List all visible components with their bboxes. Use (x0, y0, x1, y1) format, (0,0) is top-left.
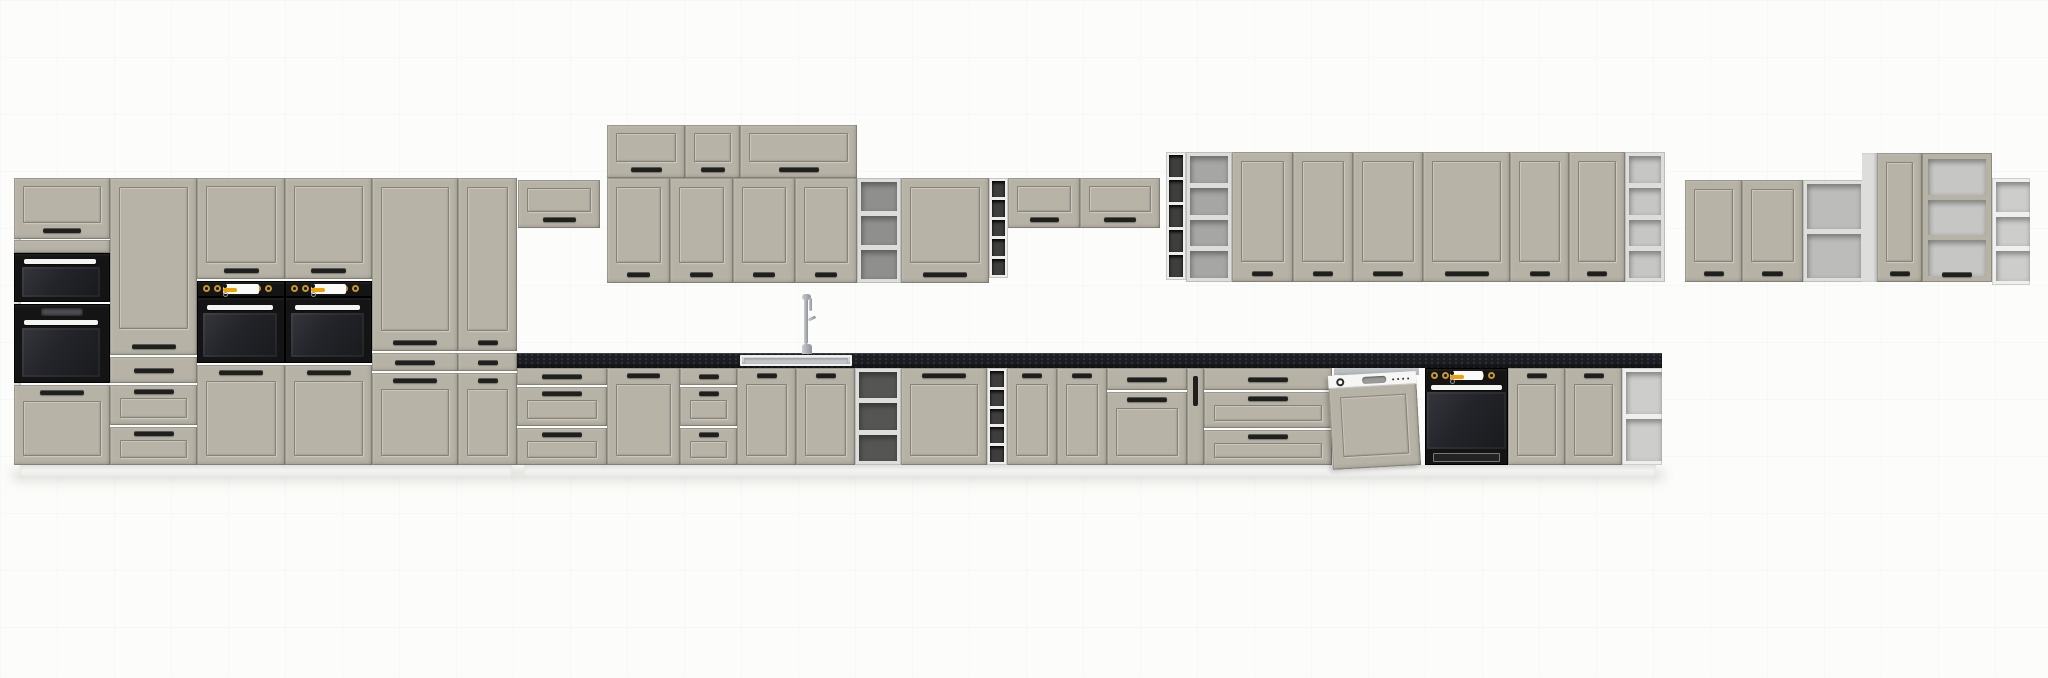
door-panel (23, 401, 101, 456)
oven-tower1-control-panel (197, 281, 285, 297)
handle (1248, 434, 1288, 439)
wine-rack-cell (990, 427, 1004, 443)
shelf-compartment (861, 182, 897, 211)
wall-door-6 (1232, 152, 1293, 282)
wall-wine-rack-1 (989, 178, 1008, 278)
larder1-drawer (372, 353, 458, 371)
plinth-tall-run (20, 465, 512, 478)
handle (542, 374, 582, 379)
shelf-compartment (1928, 240, 1986, 276)
dishwasher-handle (1362, 376, 1386, 384)
handle (1584, 373, 1604, 378)
door-panel (1432, 161, 1501, 262)
handle (1127, 397, 1167, 402)
handle (1587, 271, 1607, 276)
plinth-base-run (524, 465, 1656, 478)
door-panel (805, 384, 846, 456)
handle (478, 378, 498, 383)
handle (1030, 217, 1059, 222)
shelf-compartment (1996, 182, 2030, 212)
handle (543, 217, 576, 222)
shelf-compartment (859, 403, 897, 429)
handle (699, 391, 719, 396)
tall-built-in-oven (14, 304, 110, 383)
wall-wine-rack-2 (1166, 152, 1186, 280)
handle (393, 378, 437, 383)
wine-rack-cell (992, 181, 1005, 197)
door-panel (467, 389, 508, 456)
door-panel (910, 384, 978, 456)
handle (478, 360, 498, 365)
handle (542, 432, 582, 437)
handle (627, 272, 650, 277)
knob-icon (1431, 372, 1438, 379)
tall1-top-flip-door (14, 178, 110, 239)
handle (699, 432, 719, 437)
door-panel (749, 133, 848, 162)
handle (1104, 217, 1136, 222)
oven-glass (1427, 392, 1506, 449)
door-panel (120, 440, 187, 458)
wall-top-flip-1 (607, 125, 685, 178)
sink-base-door-1 (737, 368, 796, 465)
larder2-door (458, 178, 517, 351)
right-wall-open-shelf (1803, 180, 1865, 282)
shelf-compartment (1190, 188, 1228, 215)
handle (395, 360, 435, 365)
handle (311, 268, 346, 273)
handle (753, 272, 775, 277)
handle (1248, 396, 1288, 401)
base-top-drawer (1107, 368, 1187, 390)
kitchen-render-scene (0, 0, 2048, 678)
knob-icon (352, 285, 359, 292)
wall-open-shelf-2 (1186, 152, 1232, 282)
door-panel (1694, 189, 1733, 262)
oven-tower2-door (285, 365, 372, 465)
shelf-compartment (1626, 372, 1662, 414)
door-panel (1116, 408, 1178, 456)
base-open-shelf (855, 368, 901, 465)
shelf-compartment (1190, 156, 1228, 183)
larder2-bottom-door (458, 373, 517, 465)
wall-door-4 (795, 178, 857, 283)
oven-handle (295, 305, 360, 310)
cabinet-front (14, 240, 110, 253)
wine-rack-cell (990, 409, 1004, 425)
wall-top-flip-2 (685, 125, 740, 178)
door-panel (616, 133, 676, 162)
dishwasher-buttons-icon (1392, 378, 1394, 380)
wall-door-8 (1353, 152, 1423, 282)
faucet (795, 292, 819, 354)
larder1-door (372, 178, 458, 351)
dial-icon (1450, 379, 1455, 384)
door-panel (1066, 384, 1098, 456)
shelf-compartment (1807, 184, 1861, 229)
tall2-drawer-2 (110, 385, 197, 425)
door-panel (1886, 162, 1913, 262)
oven-handle (24, 320, 98, 325)
wall-door-3 (733, 178, 795, 283)
tall1-bottom-door (14, 385, 110, 465)
shelf-compartment (859, 372, 897, 398)
drawer (680, 428, 737, 465)
door-panel (23, 186, 101, 223)
wine-rack-cell (992, 220, 1005, 236)
door-panel (381, 187, 449, 331)
shelf-compartment (1629, 156, 1661, 183)
door-panel (690, 441, 727, 458)
handle (1890, 271, 1910, 276)
door-panel (120, 398, 187, 418)
door-panel (1017, 186, 1071, 212)
door-panel (1574, 384, 1613, 456)
handle (701, 167, 725, 172)
wine-rack-cell (990, 446, 1004, 462)
pullout-handle (1193, 376, 1198, 406)
handle (134, 431, 174, 436)
shelf-compartment (1928, 159, 1986, 195)
shelf-compartment (1190, 251, 1228, 278)
faucet-neck (804, 298, 808, 344)
door-panel (1241, 161, 1284, 262)
countertop (517, 353, 1662, 368)
oven-display (223, 284, 259, 294)
handle (542, 391, 582, 396)
handle (1530, 271, 1550, 276)
wine-rack-cell (1169, 255, 1183, 277)
handle (1373, 271, 1403, 276)
door-panel (527, 441, 597, 458)
handle (43, 228, 81, 233)
door-panel (804, 187, 848, 263)
tall1-filler-panel (14, 240, 110, 253)
door-panel (381, 389, 449, 456)
wall-open-shelf-3 (1625, 152, 1665, 282)
wine-rack-cell (992, 239, 1005, 255)
dishwasher (1332, 362, 1425, 465)
shelf-compartment (859, 435, 897, 461)
faucet-spout (809, 298, 812, 311)
sink (740, 355, 852, 366)
door-panel (1751, 189, 1794, 262)
right-wall-door-1 (1685, 180, 1742, 282)
base-door-4 (1057, 368, 1107, 465)
handle (631, 167, 662, 172)
base-drawers-2 (680, 368, 737, 465)
shelf-compartment (1807, 234, 1861, 279)
larder1-bottom-door (372, 373, 458, 465)
shelf-compartment (1996, 217, 2030, 247)
handle (1942, 272, 1972, 277)
oven-tower1-oven (197, 297, 285, 363)
door-panel (206, 381, 276, 456)
oven-display (311, 284, 346, 294)
shelf-compartment (1928, 200, 1986, 236)
microwave-glass (22, 267, 100, 297)
microwave-handle (24, 259, 96, 264)
door-panel (742, 187, 786, 263)
wall-flip-3 (1008, 178, 1080, 228)
door-panel (119, 187, 188, 329)
door-panel (1016, 384, 1048, 456)
knob-icon (1488, 372, 1495, 379)
shelf-compartment (1190, 220, 1228, 247)
drawer (517, 428, 607, 465)
door-panel (294, 186, 363, 263)
wall-door-1 (607, 178, 670, 283)
door-panel (294, 381, 363, 456)
handle (1252, 271, 1273, 276)
door-panel (616, 384, 671, 456)
door-panel (694, 133, 731, 162)
shelf-compartment (1629, 251, 1661, 278)
base-pullout (1187, 368, 1204, 465)
microwave (14, 253, 110, 302)
base-door-2 (901, 368, 987, 465)
oven-vent-drawer (1433, 453, 1500, 462)
handle (816, 373, 836, 378)
wall-flip-4 (1080, 178, 1160, 228)
dishwasher-door (1328, 371, 1421, 470)
wine-rack-cell (990, 371, 1004, 387)
door-panel (1340, 394, 1409, 458)
oven-glass (22, 328, 100, 377)
door-panel (679, 187, 724, 263)
drawer (680, 387, 737, 426)
wall-door-10 (1510, 152, 1569, 282)
door-panel (527, 400, 597, 419)
handle (224, 268, 259, 273)
drawer (1204, 368, 1332, 390)
oven-glass (203, 313, 277, 357)
wall-door-2 (670, 178, 733, 283)
shelf-compartment (1996, 251, 2030, 281)
door-panel (1519, 161, 1560, 262)
door-panel (467, 187, 508, 331)
oven-tower1-flip-door (197, 178, 285, 279)
door-panel (1578, 161, 1616, 262)
oven-tower2-control-panel (285, 281, 372, 297)
base-corner-shelf (1622, 368, 1662, 465)
door-panel (910, 187, 980, 263)
door-panel (616, 187, 661, 263)
shelf-compartment (861, 250, 897, 279)
door-panel (1302, 161, 1344, 262)
handle (1527, 373, 1547, 378)
wall-door-9 (1423, 152, 1510, 282)
tall2-drawer-1 (110, 357, 197, 383)
right-wall-vitrine (1922, 153, 1992, 282)
built-in-oven (1425, 368, 1508, 465)
base-wine-rack (987, 368, 1007, 465)
wine-rack-cell (1169, 205, 1183, 227)
handle (1022, 373, 1042, 378)
right-wall-door-3 (1877, 153, 1922, 282)
right-wall-corner-shelf (1992, 178, 2030, 285)
handle (627, 373, 660, 378)
drawer (517, 387, 607, 426)
handle (922, 373, 966, 378)
sink-bowl (744, 358, 848, 364)
faucet-base (802, 344, 812, 354)
tall2-door (110, 178, 197, 355)
handle (1127, 377, 1167, 382)
door-panel (1089, 186, 1151, 212)
door-panel (690, 400, 727, 419)
handle (134, 368, 174, 373)
handle (1072, 373, 1092, 378)
wall-flip-over-counter (518, 180, 600, 228)
handle (132, 344, 176, 349)
knob-icon (291, 285, 298, 292)
handle (1762, 271, 1783, 276)
handle (779, 167, 819, 172)
drawer (680, 368, 737, 385)
knob-icon (203, 285, 210, 292)
drawer (1204, 430, 1332, 465)
oven-tower2-oven (285, 297, 372, 363)
handle (815, 272, 837, 277)
knob-icon (265, 285, 272, 292)
knob-icon (302, 285, 309, 292)
oven-tower1-door (197, 365, 285, 465)
right-wall-door-2 (1742, 180, 1803, 282)
handle (478, 340, 498, 345)
handle (923, 272, 967, 277)
door-panel (746, 384, 787, 456)
handle (219, 370, 263, 375)
faucet-lever (808, 315, 817, 321)
door-panel (1214, 405, 1322, 421)
base-door-6 (1565, 368, 1622, 465)
handle (757, 373, 777, 378)
knob-icon (214, 285, 221, 292)
wine-rack-cell (990, 390, 1004, 406)
handle (1445, 271, 1489, 276)
wall-open-shelf-1 (857, 178, 901, 283)
door-panel (1517, 384, 1556, 456)
wine-rack-cell (992, 200, 1005, 216)
wine-rack-cell (1169, 180, 1183, 202)
handle (393, 340, 437, 345)
knob-icon (1442, 372, 1449, 379)
oven-tower2-flip-door (285, 178, 372, 279)
oven-glass (291, 313, 364, 357)
handle (1313, 271, 1333, 276)
handle (1704, 271, 1724, 276)
shelf-compartment (1629, 188, 1661, 215)
door-panel (206, 186, 276, 263)
handle (1248, 377, 1288, 382)
wine-rack-cell (992, 259, 1005, 275)
shelf-compartment (861, 216, 897, 245)
wine-rack-cell (1169, 230, 1183, 252)
oven-display (1450, 371, 1483, 380)
larder2-drawer (458, 353, 517, 371)
wall-door-7 (1293, 152, 1353, 282)
door-panel (1362, 161, 1414, 262)
base-door-5 (1508, 368, 1565, 465)
handle (40, 390, 84, 395)
drawer (517, 368, 607, 385)
base-door-under-drawer (1107, 392, 1187, 465)
wall-door-11 (1569, 152, 1625, 282)
shelf-compartment (1626, 419, 1662, 461)
base-drawers-3 (1204, 368, 1332, 465)
wall-door-5 (901, 178, 989, 283)
handle (690, 272, 713, 277)
base-drawers-1 (517, 368, 607, 465)
oven-display (41, 308, 83, 316)
sink-base-door-2 (796, 368, 855, 465)
door-panel (1214, 443, 1322, 458)
base-door-3 (1007, 368, 1057, 465)
shelf-compartment (1629, 220, 1661, 247)
dishwasher-knob-icon (1336, 378, 1344, 386)
handle (307, 370, 351, 375)
base-door-1 (607, 368, 680, 465)
wall-top-flip-wide (740, 125, 857, 178)
handle (134, 389, 174, 394)
oven-handle (1431, 385, 1502, 390)
handle (699, 374, 719, 379)
oven-handle (207, 305, 273, 310)
tall2-drawer-3 (110, 427, 197, 465)
wine-rack-cell (1169, 155, 1183, 177)
right-wall-side-panel (1862, 153, 1877, 282)
drawer (1204, 392, 1332, 428)
door-panel (527, 188, 591, 212)
